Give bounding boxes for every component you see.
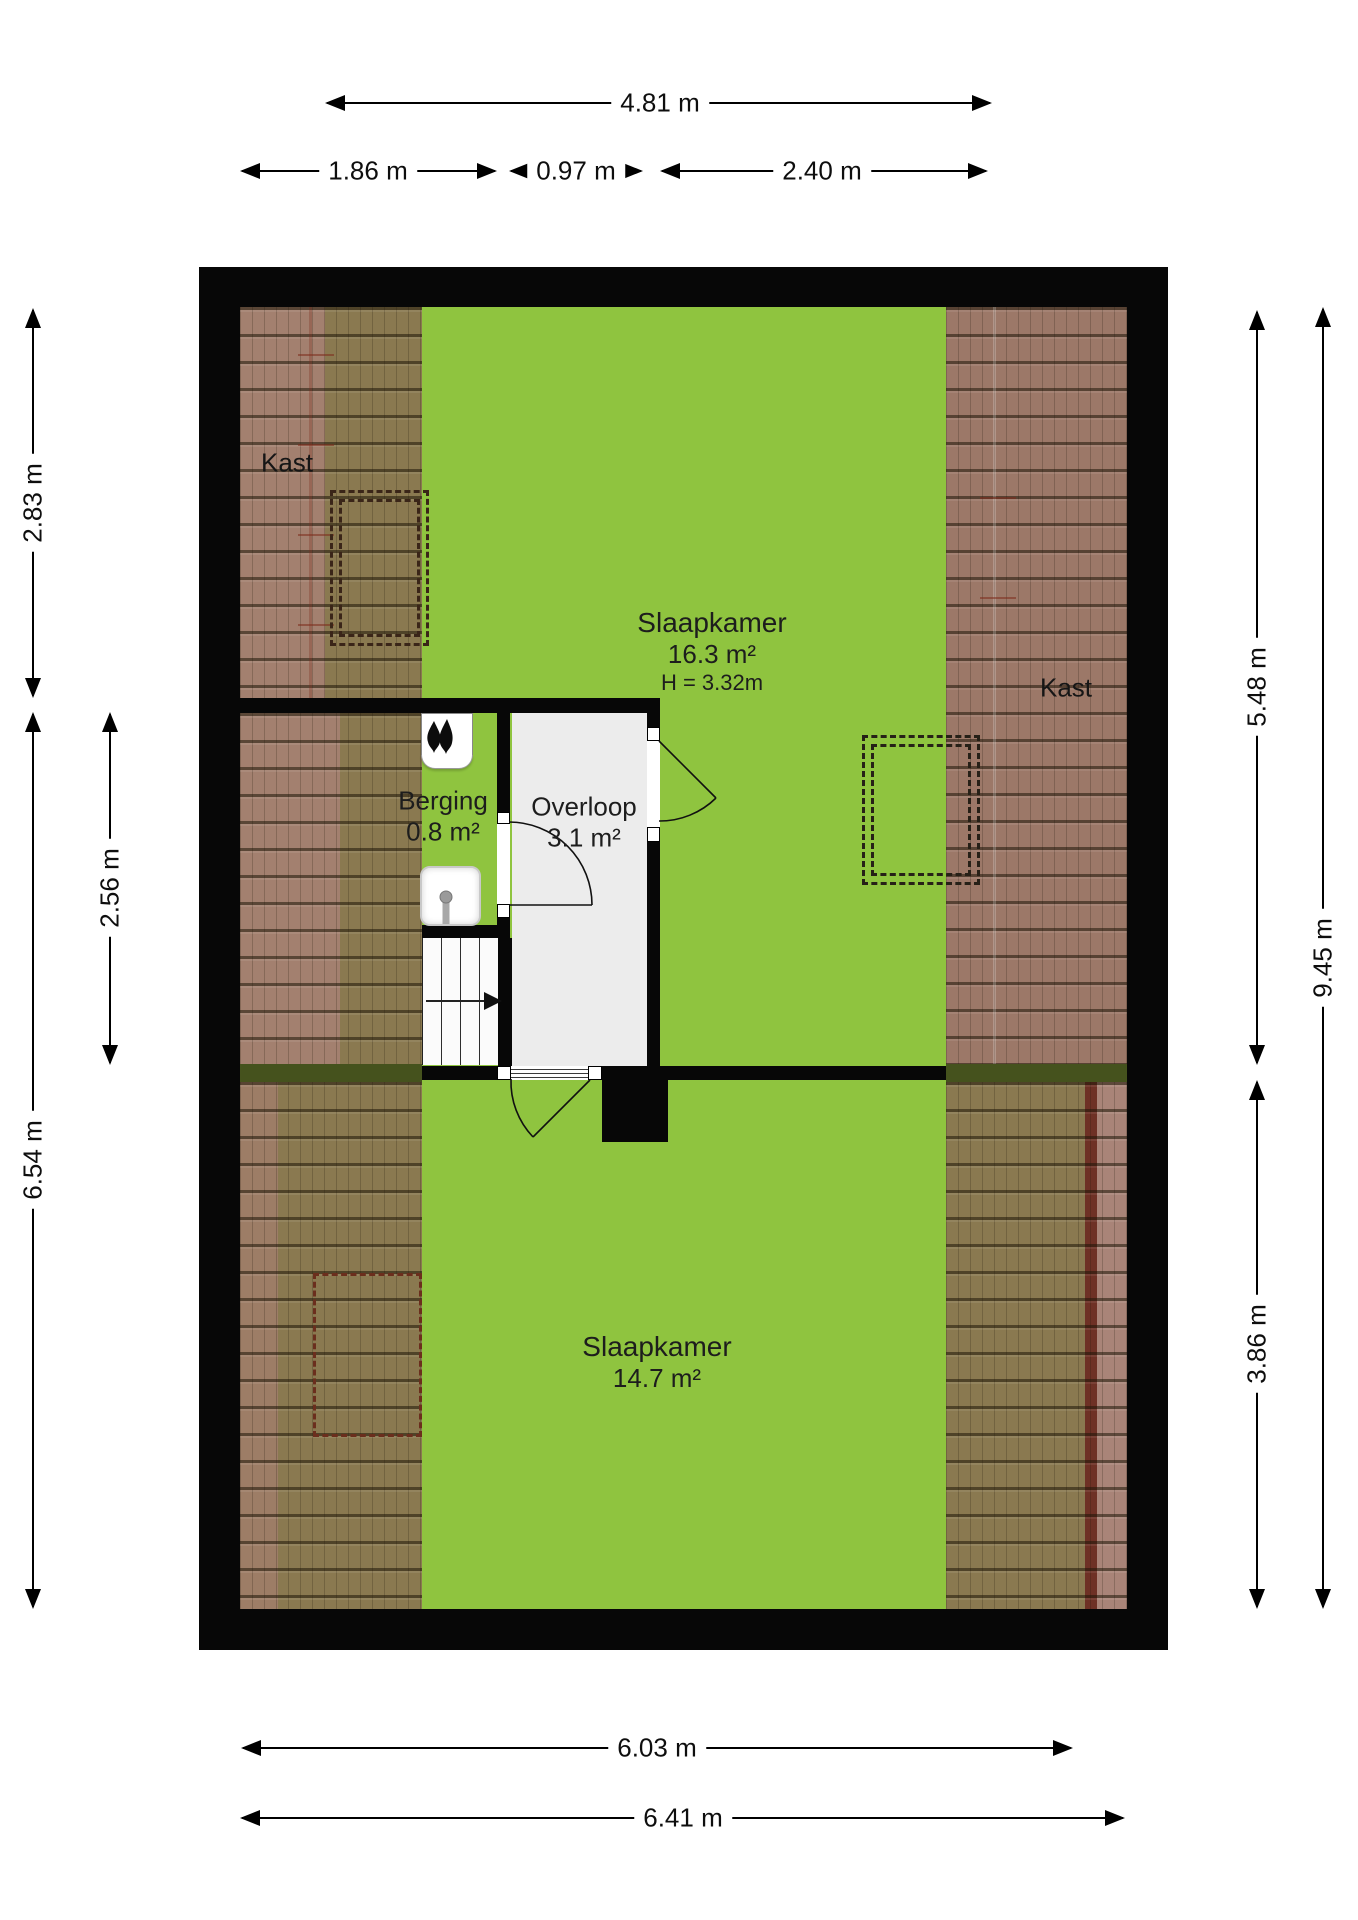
dim-label-top-seg-1: 1.86 m [319, 155, 417, 188]
room-name: Overloop [531, 791, 637, 822]
ridge-line-left [309, 307, 312, 698]
wall-berging-top [199, 698, 660, 713]
room-label-slaapkamer-boven: Slaapkamer 16.3 m² H = 3.32m [637, 606, 786, 696]
floor-plan-canvas: Slaapkamer 16.3 m² H = 3.32m Slaapkamer … [0, 0, 1358, 1920]
door-jamb [647, 827, 660, 842]
ridge-tick [980, 497, 1016, 499]
room-area: 16.3 m² [637, 639, 786, 670]
wall-berging-bottom [422, 925, 510, 938]
wall-berging-overloop [497, 713, 510, 812]
dim-label-left-upper: 2.83 m [17, 454, 50, 552]
ridge-tick [298, 444, 334, 446]
room-area: 3.1 m² [531, 822, 637, 853]
dim-label-right-inner-lower: 3.86 m [1241, 1295, 1274, 1393]
chimney-block [602, 1066, 668, 1142]
closet-outline-lower-left [313, 1273, 422, 1437]
door-jamb [497, 812, 510, 824]
dim-label-right-inner-upper: 5.48 m [1241, 638, 1274, 736]
dim-label-bottom-outer: 6.41 m [634, 1802, 732, 1835]
door-jamb [647, 727, 660, 741]
ridge-tick [298, 624, 334, 626]
dim-label-top-total: 4.81 m [611, 87, 709, 120]
dim-label-left-inner: 2.56 m [94, 839, 127, 937]
wall-middle-over-tiles-right [946, 1064, 1127, 1082]
dim-label-top-seg-3: 2.40 m [773, 155, 871, 188]
closet-outline-right [862, 735, 980, 885]
room-area: 14.7 m² [582, 1363, 731, 1394]
dim-label-bottom-inner: 6.03 m [608, 1732, 706, 1765]
room-label-overloop: Overloop 3.1 m² [531, 791, 637, 852]
roof-tiles-right-upper [946, 307, 1127, 1064]
dim-label-right-outer: 9.45 m [1307, 909, 1340, 1007]
roof-tiles-left-middle [240, 713, 422, 1064]
wall-middle-over-tiles-left [240, 1064, 422, 1082]
door-opening [647, 741, 660, 827]
dim-label-top-seg-2: 0.97 m [527, 155, 625, 188]
door-opening [497, 824, 510, 904]
wall-overloop-right [647, 842, 660, 1066]
ridge-tick [298, 354, 334, 356]
room-label-slaapkamer-onder: Slaapkamer 14.7 m² [582, 1330, 731, 1394]
room-label-kast-right: Kast [1040, 673, 1092, 704]
mechanical-ventilation-unit [421, 713, 473, 757]
dim-label-left-lower: 6.54 m [17, 1111, 50, 1209]
ridge-line-right [993, 307, 996, 1064]
room-name: Slaapkamer [637, 606, 786, 639]
closet-outline-upper-left [330, 490, 429, 646]
wall-stairs-overloop [498, 938, 512, 1066]
door-jamb [588, 1066, 602, 1080]
mechanical-ventilation-lip [421, 755, 473, 769]
stairs [422, 938, 498, 1065]
room-name: Slaapkamer [582, 1330, 731, 1363]
ridge-tick [980, 597, 1016, 599]
ridge-tick [298, 534, 334, 536]
sink [420, 866, 481, 926]
room-label-berging: Berging 0.8 m² [398, 785, 488, 846]
room-area: 0.8 m² [398, 816, 488, 847]
door-jamb [497, 904, 510, 918]
room-label-kast-left: Kast [261, 448, 313, 479]
wall-overloop-right [647, 713, 660, 727]
door-threshold [511, 1066, 588, 1080]
room-ceiling-height: H = 3.32m [637, 670, 786, 696]
roof-tiles-right-lower [946, 1082, 1127, 1609]
overloop-floor [512, 713, 647, 1066]
room-name: Berging [398, 785, 488, 816]
door-jamb [497, 1066, 511, 1080]
